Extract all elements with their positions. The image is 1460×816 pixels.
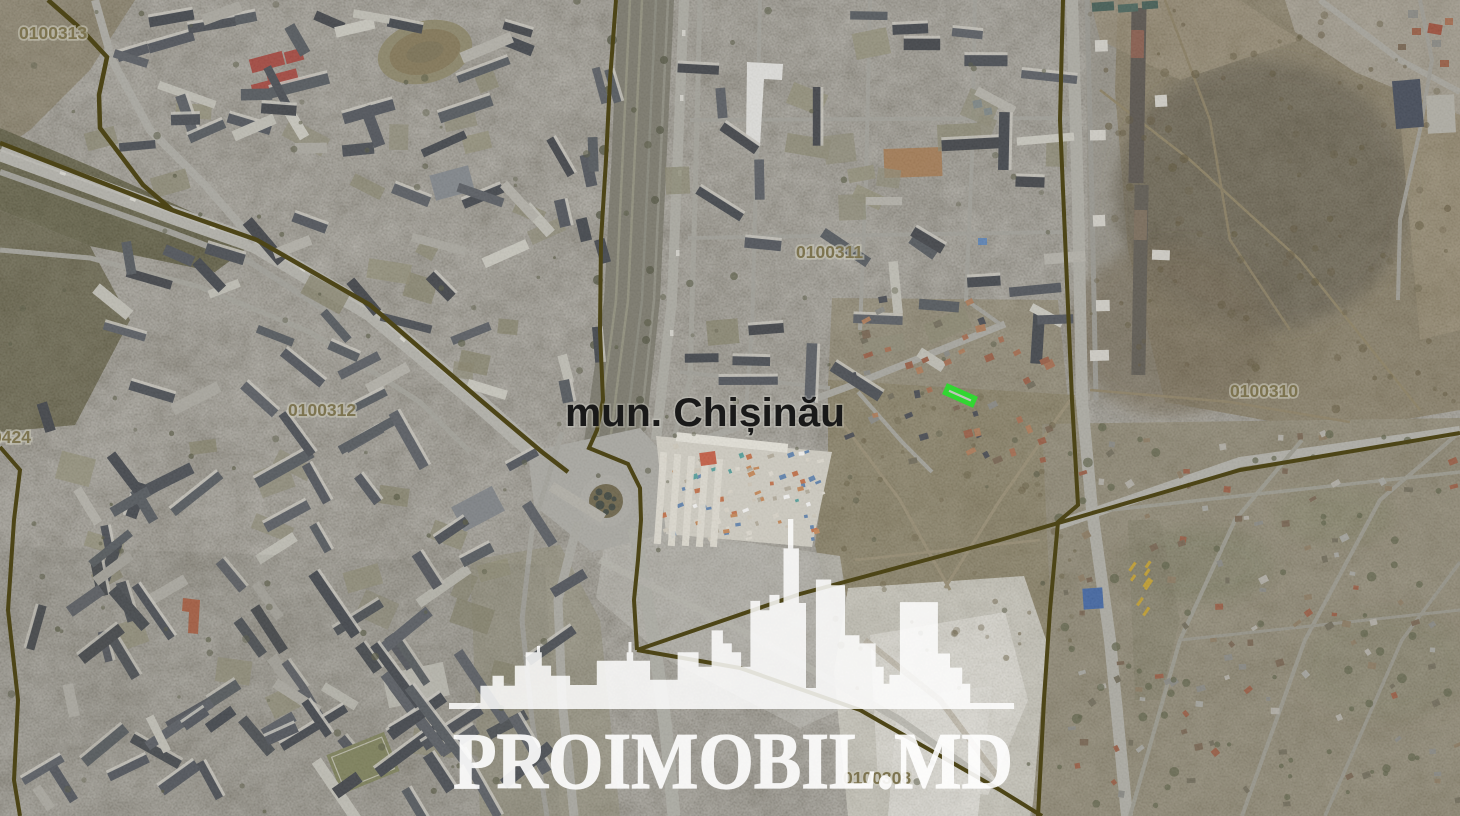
svg-text:0100313: 0100313 (19, 23, 87, 43)
svg-text:0100311: 0100311 (796, 242, 863, 262)
svg-text:0100310: 0100310 (1230, 381, 1298, 401)
svg-text:PROIMOBIL.MD: PROIMOBIL.MD (453, 718, 1013, 806)
svg-text:mun. Chișinău: mun. Chișinău (565, 391, 845, 435)
svg-text:0100312: 0100312 (288, 400, 356, 420)
svg-text:0424: 0424 (0, 427, 31, 447)
